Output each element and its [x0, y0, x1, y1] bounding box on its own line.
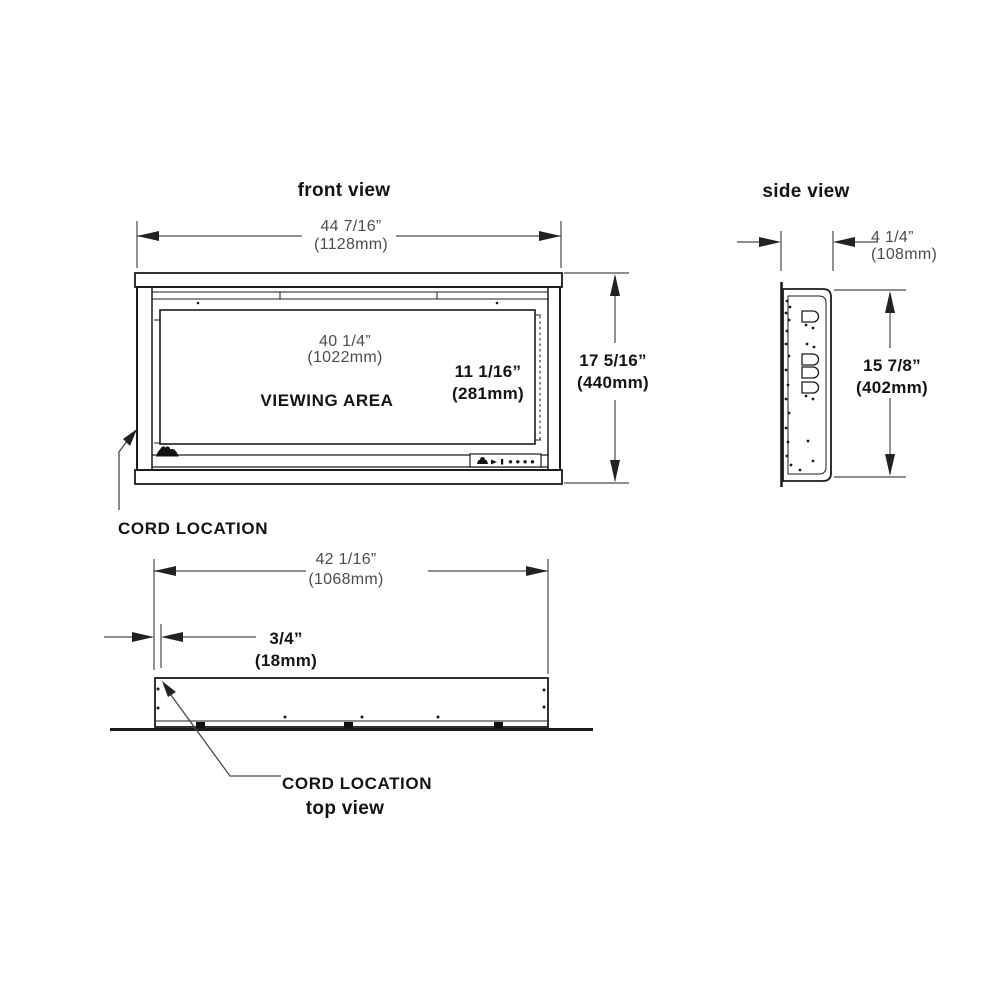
top-view-title: top view: [306, 798, 384, 820]
front-view-title: front view: [298, 180, 391, 202]
front-top-flange: [135, 273, 562, 287]
front-louver-dot: [496, 302, 499, 305]
dimension-mm: (1022mm): [307, 350, 382, 366]
dimension-inches: 17 5/16”: [577, 350, 649, 372]
top-view-drawing: [104, 559, 593, 776]
dimension-mm: (281mm): [452, 383, 524, 405]
fireplace-dimension-drawing: front view 44 7/16” (1128mm) 40 1/4” (10…: [0, 0, 1000, 1000]
front-cord-location-label: CORD LOCATION: [118, 519, 268, 539]
front-overall-height-dimension: 17 5/16” (440mm): [577, 350, 649, 394]
side-view-title: side view: [762, 181, 849, 203]
dimension-mm: (1128mm): [314, 236, 388, 254]
front-viewing-width-dimension: 40 1/4” (1022mm): [307, 334, 382, 366]
top-cord-location-label: CORD LOCATION: [282, 774, 432, 794]
front-louver-dot: [197, 302, 200, 305]
front-bottom-flange: [135, 470, 562, 484]
dimension-mm: (1068mm): [308, 570, 383, 590]
drawing-linework: [0, 0, 1000, 1000]
dimension-mm: (402mm): [856, 377, 928, 399]
front-viewing-height-dimension: 11 1/16” (281mm): [452, 361, 524, 405]
side-height-dimension: 15 7/8” (402mm): [856, 355, 928, 399]
front-overall-width-dimension: 44 7/16” (1128mm): [314, 218, 388, 254]
dimension-inches: 42 1/16”: [308, 550, 383, 570]
dimension-mm: (440mm): [577, 372, 649, 394]
control-button-dot: [516, 460, 519, 463]
dimension-mm: (108mm): [871, 246, 937, 263]
top-cord-offset-dimension: 3/4” (18mm): [255, 628, 317, 672]
dimension-inches: 44 7/16”: [314, 218, 388, 236]
dimension-inches: 4 1/4”: [871, 229, 937, 246]
dimension-inches: 11 1/16”: [452, 361, 524, 383]
control-button-dot: [523, 460, 526, 463]
dimension-inches: 40 1/4”: [307, 334, 382, 350]
top-body-outline: [155, 678, 548, 727]
top-width-dimension: 42 1/16” (1068mm): [308, 550, 383, 590]
side-depth-dimension: 4 1/4” (108mm): [871, 229, 937, 263]
front-cord-leader-line: [119, 433, 133, 510]
dimension-mm: (18mm): [255, 650, 317, 672]
control-button-dot: [531, 460, 534, 463]
dimension-inches: 15 7/8”: [856, 355, 928, 377]
control-button-dot: [509, 460, 512, 463]
dimension-inches: 3/4”: [255, 628, 317, 650]
viewing-area-label: VIEWING AREA: [260, 391, 393, 411]
